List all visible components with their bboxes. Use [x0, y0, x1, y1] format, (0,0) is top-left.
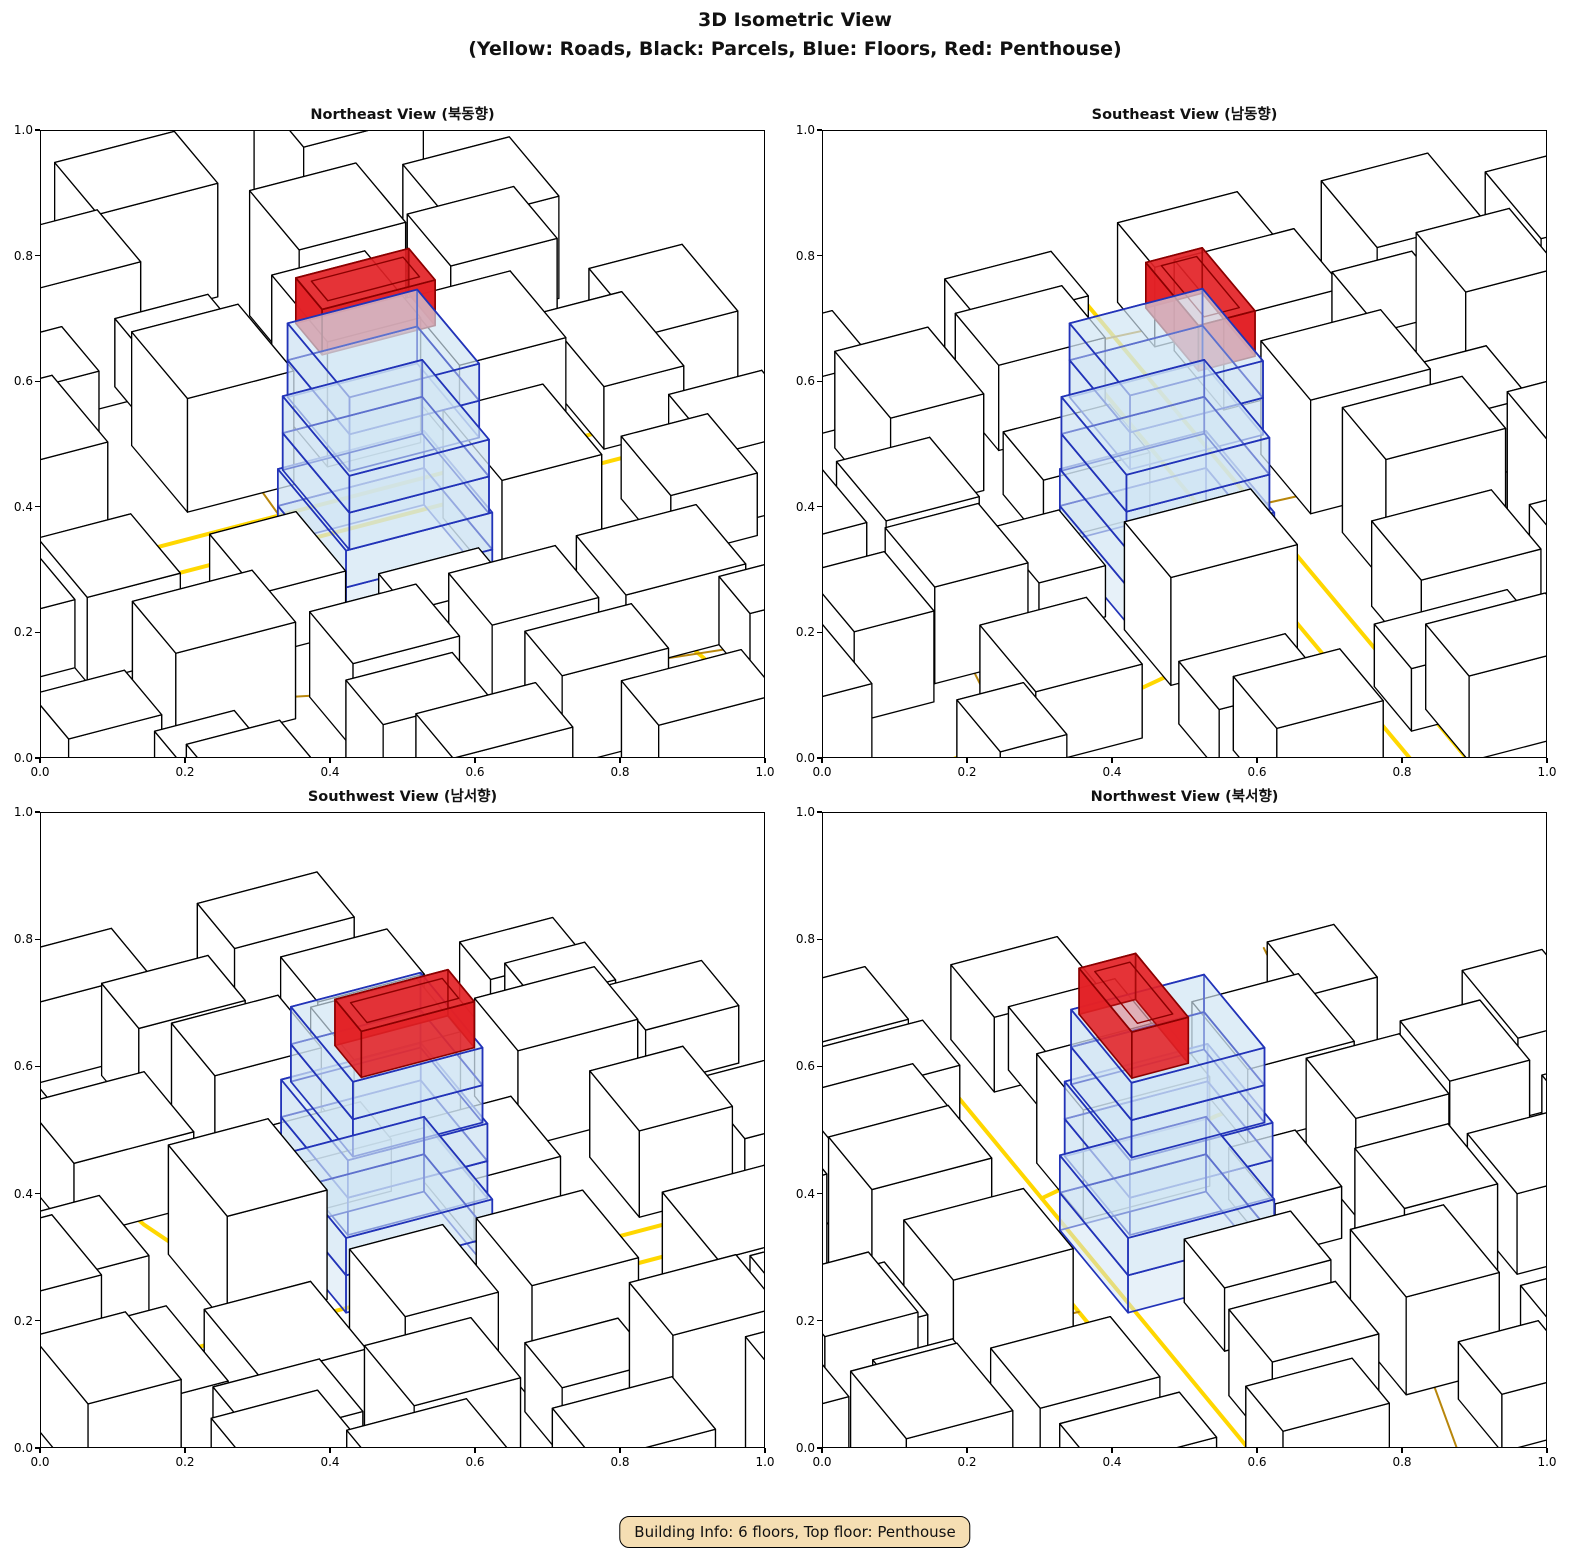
- y-tick-label: 0.2: [0, 1315, 33, 1327]
- x-tick-label: 1.0: [755, 766, 774, 778]
- x-tick-mark: [1401, 1448, 1402, 1453]
- scene-southwest: [41, 813, 764, 1447]
- y-tick-label: 0.8: [781, 250, 815, 262]
- y-tick-mark: [817, 129, 822, 130]
- y-tick-label: 0.0: [781, 752, 815, 764]
- x-tick-mark: [39, 1448, 40, 1453]
- y-tick-mark: [35, 1193, 40, 1194]
- axes-northeast: [40, 130, 765, 758]
- y-tick-mark: [35, 381, 40, 382]
- x-tick-mark: [966, 758, 967, 763]
- y-tick-mark: [35, 1320, 40, 1321]
- y-tick-mark: [817, 811, 822, 812]
- y-tick-label: 0.0: [781, 1442, 815, 1454]
- axes-northwest: [822, 812, 1547, 1448]
- scene-northeast: [41, 131, 764, 757]
- y-tick-label: 0.8: [781, 933, 815, 945]
- subplot-northwest: Northwest View (북서향) 0.00.20.40.60.81.00…: [822, 812, 1547, 1448]
- y-tick-mark: [817, 632, 822, 633]
- y-tick-label: 1.0: [781, 806, 815, 818]
- y-tick-mark: [817, 1066, 822, 1067]
- y-tick-label: 0.0: [0, 752, 33, 764]
- x-tick-mark: [184, 758, 185, 763]
- x-tick-label: 1.0: [755, 1456, 774, 1468]
- x-tick-label: 0.2: [957, 1456, 976, 1468]
- y-tick-mark: [817, 1320, 822, 1321]
- x-tick-mark: [329, 1448, 330, 1453]
- x-tick-label: 0.0: [812, 766, 831, 778]
- subplot-northeast: Northeast View (북동향) 0.00.20.40.60.81.00…: [40, 130, 765, 758]
- axes-southeast: [822, 130, 1547, 758]
- axes-southwest: [40, 812, 765, 1448]
- y-tick-label: 1.0: [0, 124, 33, 136]
- x-tick-label: 0.4: [320, 1456, 339, 1468]
- y-tick-mark: [35, 506, 40, 507]
- subplot-southeast: Southeast View (남동향) 0.00.20.40.60.81.00…: [822, 130, 1547, 758]
- figure-title-line1: 3D Isometric View: [0, 6, 1590, 35]
- y-tick-label: 0.2: [781, 1315, 815, 1327]
- x-tick-mark: [821, 1448, 822, 1453]
- figure-title: 3D Isometric View (Yellow: Roads, Black:…: [0, 6, 1590, 63]
- x-tick-label: 0.2: [175, 766, 194, 778]
- x-tick-label: 0.0: [812, 1456, 831, 1468]
- x-tick-mark: [1256, 758, 1257, 763]
- y-tick-mark: [817, 939, 822, 940]
- x-tick-mark: [1111, 758, 1112, 763]
- y-tick-label: 0.2: [781, 626, 815, 638]
- y-tick-mark: [35, 811, 40, 812]
- y-tick-mark: [817, 255, 822, 256]
- y-tick-mark: [35, 129, 40, 130]
- x-tick-mark: [966, 1448, 967, 1453]
- building-info-badge: Building Info: 6 floors, Top floor: Pent…: [619, 1516, 970, 1548]
- x-tick-mark: [821, 758, 822, 763]
- y-tick-mark: [35, 632, 40, 633]
- y-tick-label: 0.4: [781, 1188, 815, 1200]
- y-tick-label: 1.0: [0, 806, 33, 818]
- y-tick-label: 0.4: [0, 501, 33, 513]
- subplot-southwest: Southwest View (남서향) 0.00.20.40.60.81.00…: [40, 812, 765, 1448]
- x-tick-mark: [329, 758, 330, 763]
- x-tick-label: 0.2: [957, 766, 976, 778]
- y-tick-label: 0.6: [0, 375, 33, 387]
- x-tick-mark: [474, 758, 475, 763]
- y-tick-label: 0.0: [0, 1442, 33, 1454]
- x-tick-mark: [619, 1448, 620, 1453]
- x-tick-mark: [764, 1448, 765, 1453]
- x-tick-label: 0.8: [610, 1456, 629, 1468]
- x-tick-label: 0.0: [30, 766, 49, 778]
- x-tick-label: 0.6: [1247, 766, 1266, 778]
- x-tick-label: 0.6: [465, 766, 484, 778]
- x-tick-label: 0.8: [610, 766, 629, 778]
- x-tick-label: 0.4: [1102, 1456, 1121, 1468]
- x-tick-label: 0.6: [465, 1456, 484, 1468]
- x-tick-label: 0.0: [30, 1456, 49, 1468]
- x-tick-mark: [1546, 758, 1547, 763]
- y-tick-mark: [35, 255, 40, 256]
- x-tick-mark: [1401, 758, 1402, 763]
- scene-northwest: [823, 813, 1546, 1447]
- y-tick-mark: [817, 1193, 822, 1194]
- scene-southeast: [823, 131, 1546, 757]
- x-tick-mark: [474, 1448, 475, 1453]
- x-tick-mark: [1111, 1448, 1112, 1453]
- x-tick-label: 0.8: [1392, 766, 1411, 778]
- y-tick-label: 0.8: [0, 933, 33, 945]
- y-tick-mark: [817, 381, 822, 382]
- y-tick-mark: [35, 1066, 40, 1067]
- x-tick-label: 0.4: [320, 766, 339, 778]
- x-tick-mark: [619, 758, 620, 763]
- x-tick-label: 1.0: [1537, 766, 1556, 778]
- y-tick-label: 0.4: [0, 1188, 33, 1200]
- y-tick-label: 0.8: [0, 250, 33, 262]
- x-tick-mark: [39, 758, 40, 763]
- y-tick-label: 0.6: [0, 1060, 33, 1072]
- x-tick-label: 0.8: [1392, 1456, 1411, 1468]
- y-tick-label: 0.6: [781, 1060, 815, 1072]
- x-tick-label: 0.6: [1247, 1456, 1266, 1468]
- subplot-title-southwest: Southwest View (남서향): [40, 785, 765, 806]
- y-tick-label: 1.0: [781, 124, 815, 136]
- x-tick-mark: [184, 1448, 185, 1453]
- y-tick-mark: [35, 939, 40, 940]
- x-tick-mark: [764, 758, 765, 763]
- y-tick-label: 0.4: [781, 501, 815, 513]
- subplot-title-northeast: Northeast View (북동향): [40, 103, 765, 124]
- x-tick-mark: [1256, 1448, 1257, 1453]
- x-tick-mark: [1546, 1448, 1547, 1453]
- y-tick-label: 0.2: [0, 626, 33, 638]
- y-tick-mark: [817, 506, 822, 507]
- figure-title-line2: (Yellow: Roads, Black: Parcels, Blue: Fl…: [0, 35, 1590, 64]
- subplot-title-northwest: Northwest View (북서향): [822, 785, 1547, 806]
- y-tick-label: 0.6: [781, 375, 815, 387]
- x-tick-label: 0.2: [175, 1456, 194, 1468]
- x-tick-label: 1.0: [1537, 1456, 1556, 1468]
- subplot-title-southeast: Southeast View (남동향): [822, 103, 1547, 124]
- x-tick-label: 0.4: [1102, 766, 1121, 778]
